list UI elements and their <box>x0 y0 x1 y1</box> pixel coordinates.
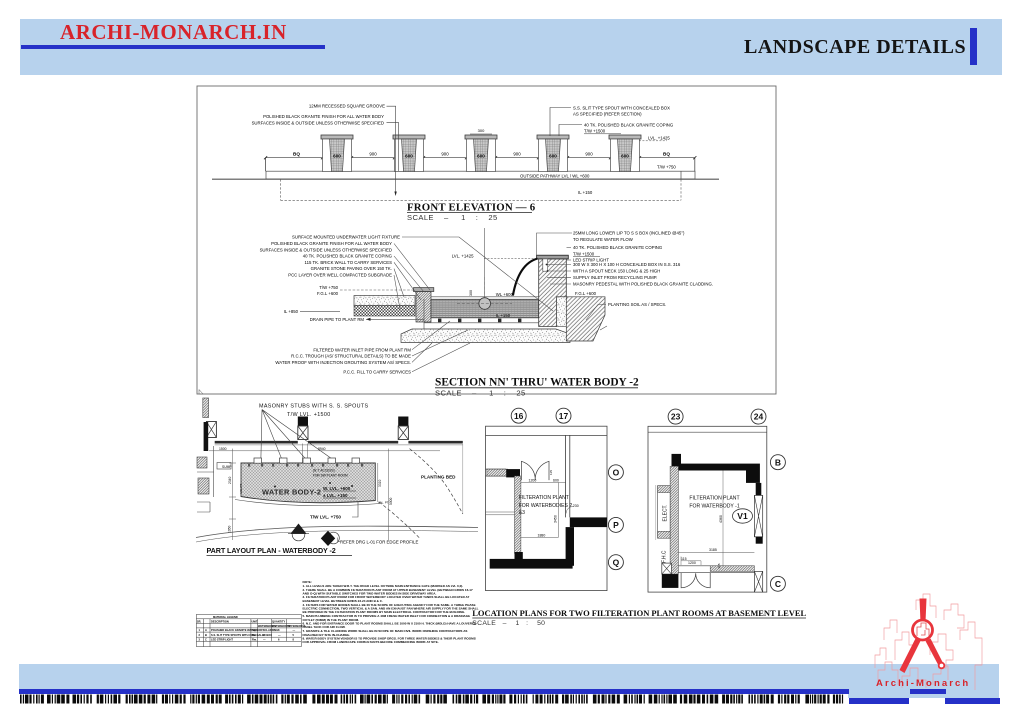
svg-text:900: 900 <box>441 152 449 157</box>
svg-text:300: 300 <box>469 290 473 296</box>
svg-text:Q: Q <box>613 557 620 567</box>
svg-text:POLISHED BLACK GRANITE FINISH: POLISHED BLACK GRANITE FINISH FOR ALL WA… <box>263 114 384 119</box>
svg-text:A: A <box>205 628 207 632</box>
svg-text:2: 2 <box>199 633 201 637</box>
svg-text:IL +150: IL +150 <box>578 190 593 195</box>
svg-text:3: 3 <box>199 637 201 641</box>
svg-text:SCALE – 1 : 50: SCALE – 1 : 50 <box>472 620 545 627</box>
svg-text:P.C.C. FILL TO CARRY SERVICES: P.C.C. FILL TO CARRY SERVICES <box>343 369 411 374</box>
svg-text:40 TK. POLISHED BLACK GRANITE: 40 TK. POLISHED BLACK GRANITE COPING <box>303 254 393 259</box>
svg-text:SUMP: SUMP <box>222 465 232 469</box>
svg-text:900: 900 <box>369 152 377 157</box>
svg-text:BQ: BQ <box>663 152 670 157</box>
svg-text:40 TK. POLISHED BLACK GRANITE: 40 TK. POLISHED BLACK GRANITE COPING <box>573 245 663 250</box>
svg-text:115: 115 <box>717 563 721 568</box>
svg-text:PLANTING SOIL AS / SPECS.: PLANTING SOIL AS / SPECS. <box>608 302 666 307</box>
svg-text:1: 1 <box>199 628 201 632</box>
svg-text:1950: 1950 <box>228 525 232 533</box>
svg-text:T/W +750: T/W +750 <box>319 285 338 290</box>
svg-text:SCALE – 1 : 25: SCALE – 1 : 25 <box>435 389 526 398</box>
svg-text:GRANITE STONE PAVING OVER 150: GRANITE STONE PAVING OVER 150 TK. <box>311 266 392 271</box>
svg-text:W. LVL. +600: W. LVL. +600 <box>323 486 351 491</box>
svg-text:3310: 3310 <box>378 479 382 487</box>
svg-text:WL +600: WL +600 <box>496 292 514 297</box>
svg-text:LOCATION PLANS FOR TWO FILTERA: LOCATION PLANS FOR TWO FILTERATION PLANT… <box>472 608 806 618</box>
svg-text:40 TK. POLISHED BLACK GRANITE: 40 TK. POLISHED BLACK GRANITE COPING <box>584 122 674 127</box>
svg-text:S.S. SLIT TYPE SPOUT WITH CONC: S.S. SLIT TYPE SPOUT WITH CONCEALED BOX <box>573 105 670 110</box>
svg-text:MATERIAL LEGEND: MATERIAL LEGEND <box>213 615 238 619</box>
svg-text:6: 6 <box>278 637 280 641</box>
svg-text:SECTION NN' THRU' WATER BODY: SECTION NN' THRU' WATER BODY -2 <box>435 377 639 389</box>
svg-text:1880: 1880 <box>538 534 546 538</box>
svg-text:SUPPLY INLET FROM RECYCLING PU: SUPPLY INLET FROM RECYCLING PUMP. <box>573 275 657 280</box>
svg-text:FILTERATION PLANT: FILTERATION PLANT <box>689 495 739 501</box>
svg-text:MASONRY STUBS WITH S. S. SPOUT: MASONRY STUBS WITH S. S. SPOUTS <box>259 404 369 410</box>
svg-text:1500: 1500 <box>219 447 227 451</box>
svg-text:16: 16 <box>514 411 524 421</box>
svg-text:8: 8 <box>278 628 280 632</box>
svg-text:F.G.L +600: F.G.L +600 <box>317 291 339 296</box>
svg-text:SCALE – 1 : 25: SCALE – 1 : 25 <box>407 213 498 222</box>
svg-text:FOR APPROVAL FROM LANDSCAPE CO: FOR APPROVAL FROM LANDSCAPE CONSULTANTS … <box>303 640 439 644</box>
svg-text:V1: V1 <box>737 511 748 521</box>
svg-text:AS SPECIFIED (REFER SECTION): AS SPECIFIED (REFER SECTION) <box>573 112 642 117</box>
svg-text:LVL. +1425: LVL. +1425 <box>452 254 474 259</box>
svg-text:FOR WATERBODIES 2: FOR WATERBODIES 2 <box>519 503 573 509</box>
svg-text:DESCRIPTION: DESCRIPTION <box>211 619 229 623</box>
svg-text:ELECT.: ELECT. <box>663 505 669 522</box>
svg-text:POLISHED BLACK GRANITE FINISH: POLISHED BLACK GRANITE FINISH FOR ALL WA… <box>271 241 392 246</box>
svg-text:F.G.L +600: F.G.L +600 <box>575 291 597 296</box>
svg-text:5000: 5000 <box>389 497 393 505</box>
svg-text:FILTERATION PLANT: FILTERATION PLANT <box>519 495 569 501</box>
svg-text:WATER BODY-2: WATER BODY-2 <box>262 488 321 497</box>
svg-text:LED STRIP LIGHT: LED STRIP LIGHT <box>211 637 233 641</box>
svg-text:OUTSIDE PATHWAY LVL / WL +600: OUTSIDE PATHWAY LVL / WL +600 <box>520 174 590 179</box>
svg-text:300 W X 300 H X 100 H CONCEALE: 300 W X 300 H X 100 H CONCEALED BOX IN S… <box>573 262 681 267</box>
svg-text:FILTERED WATER INLET PIPE FROM: FILTERED WATER INLET PIPE FROM PLANT RM <box>313 347 411 352</box>
svg-text:LVL. +1425: LVL. +1425 <box>648 136 670 141</box>
svg-text:TO REGULATE WATER FLOW: TO REGULATE WATER FLOW <box>573 237 634 242</box>
svg-text:300: 300 <box>478 128 485 133</box>
svg-text:600: 600 <box>405 154 413 159</box>
svg-text:600: 600 <box>549 154 557 159</box>
svg-text:R.C.C. TROUGH (AS/ STRUCTURAL: R.C.C. TROUGH (AS/ STRUCTURAL DETAILS) T… <box>291 354 411 359</box>
svg-text:FOR SW PLANT ROOM: FOR SW PLANT ROOM <box>313 473 348 477</box>
svg-text:SURFACES INSIDE & OUTSIDE UNLE: SURFACES INSIDE & OUTSIDE UNLESS OTHERWI… <box>252 120 384 125</box>
svg-text:WATER PROOF WITH INJECTION GRO: WATER PROOF WITH INJECTION GROUTING SYST… <box>275 360 411 365</box>
svg-text:600: 600 <box>333 154 341 159</box>
svg-text:IL +150: IL +150 <box>496 313 511 318</box>
svg-text:T/W +1500: T/W +1500 <box>573 251 595 256</box>
svg-text:25MM LONG LOWER LIP TO S S BOX: 25MM LONG LOWER LIP TO S S BOX (INCLINED… <box>573 231 685 236</box>
svg-text:BQ: BQ <box>293 152 300 157</box>
svg-text:2340: 2340 <box>228 476 232 484</box>
svg-text:FOR WATERBODY -1: FOR WATERBODY -1 <box>689 504 739 510</box>
svg-text:4360: 4360 <box>719 515 723 523</box>
svg-text:—: — <box>293 629 296 632</box>
svg-text:± LVL. +150: ± LVL. +150 <box>323 493 348 498</box>
svg-text:MASONRY PEDESTAL WITH POLISHED: MASONRY PEDESTAL WITH POLISHED BLACK GRA… <box>573 282 713 287</box>
svg-text:B: B <box>205 633 207 637</box>
svg-text:115 TK. BRICK WALL TO CARRY SE: 115 TK. BRICK WALL TO CARRY SERVICES <box>305 260 393 265</box>
svg-text:T/W LVL. +1500: T/W LVL. +1500 <box>287 412 331 418</box>
svg-text:8940: 8940 <box>318 447 326 451</box>
svg-text:SR.: SR. <box>197 619 202 623</box>
svg-text:SURFACE MOUNTED UNDERWATER LIG: SURFACE MOUNTED UNDERWATER LIGHT FIXTURE <box>292 235 400 240</box>
svg-text:DRAIN PIPE TO PLANT RM: DRAIN PIPE TO PLANT RM <box>310 317 365 322</box>
svg-text:600: 600 <box>477 154 485 159</box>
svg-text:(N.T. ACCESS): (N.T. ACCESS) <box>313 468 335 472</box>
svg-text:—: — <box>278 634 281 637</box>
svg-text:B: B <box>775 457 781 467</box>
svg-text:UNIT: UNIT <box>252 619 258 623</box>
svg-text:PLANTING BED: PLANTING BED <box>421 475 456 480</box>
svg-text:Rm.: Rm. <box>252 637 257 641</box>
svg-text:T/W LVL. +750: T/W LVL. +750 <box>310 515 341 520</box>
svg-text:IL +850: IL +850 <box>284 309 299 314</box>
svg-text:POLISHED BLACK GRANITE WATERBO: POLISHED BLACK GRANITE WATERBODY CLADDIN… <box>211 628 278 632</box>
svg-text:900: 900 <box>513 152 521 157</box>
svg-text:24: 24 <box>754 412 764 422</box>
svg-text:600: 600 <box>553 478 559 482</box>
svg-text:1200: 1200 <box>529 478 537 482</box>
svg-text:No.: No. <box>252 633 256 637</box>
svg-text:17: 17 <box>559 411 569 421</box>
svg-text:QUANTITY: QUANTITY <box>272 619 286 623</box>
svg-text:REFER DRG L-01 FOR EDGE PROFIL: REFER DRG L-01 FOR EDGE PROFILE <box>340 539 418 544</box>
svg-text:3185: 3185 <box>709 548 717 552</box>
svg-text:P: P <box>613 520 619 530</box>
svg-text:3450: 3450 <box>554 515 558 523</box>
svg-text:VAL PT.: VAL PT. <box>239 483 243 493</box>
svg-text:Sq.: Sq. <box>252 628 256 632</box>
svg-text:12MM RECESSED SQUARE GROOVE: 12MM RECESSED SQUARE GROOVE <box>309 104 385 109</box>
svg-text:C: C <box>775 579 781 589</box>
svg-text:SURFACES INSIDE & OUTSIDE UNLE: SURFACES INSIDE & OUTSIDE UNLESS OTHERWI… <box>260 247 392 252</box>
svg-text:T/W +750: T/W +750 <box>657 165 676 170</box>
svg-text:115: 115 <box>681 557 687 561</box>
svg-text:C: C <box>205 637 207 641</box>
svg-text:600: 600 <box>621 154 629 159</box>
svg-text:1200: 1200 <box>688 561 696 565</box>
svg-text:PART LAYOUT PLAN - WATERBODY: PART LAYOUT PLAN - WATERBODY -2 <box>207 546 336 555</box>
svg-text:8: 8 <box>293 637 295 641</box>
svg-text:WATERBODY3: WATERBODY3 <box>287 624 306 628</box>
svg-text:115: 115 <box>549 470 553 475</box>
svg-text:FRONT ELEVATION — 6: FRONT ELEVATION — 6 <box>407 202 536 214</box>
svg-text:—: — <box>263 638 266 641</box>
svg-text:PCC LAYER OVER WELL COMPACTED: PCC LAYER OVER WELL COMPACTED SUBGRADE <box>288 273 392 278</box>
svg-text:O: O <box>613 467 620 477</box>
svg-text:5: 5 <box>293 633 295 637</box>
svg-text:F.H.C: F.H.C <box>662 550 668 563</box>
svg-text:230: 230 <box>573 504 579 508</box>
svg-text:23: 23 <box>671 412 681 422</box>
svg-text:&3: &3 <box>519 510 525 516</box>
svg-text:WITH A SPOUT NECK 150 LONG & 2: WITH A SPOUT NECK 150 LONG & 25 HIGH <box>573 268 660 273</box>
svg-text:900: 900 <box>585 152 593 157</box>
svg-text:T/W +1500: T/W +1500 <box>584 129 606 134</box>
